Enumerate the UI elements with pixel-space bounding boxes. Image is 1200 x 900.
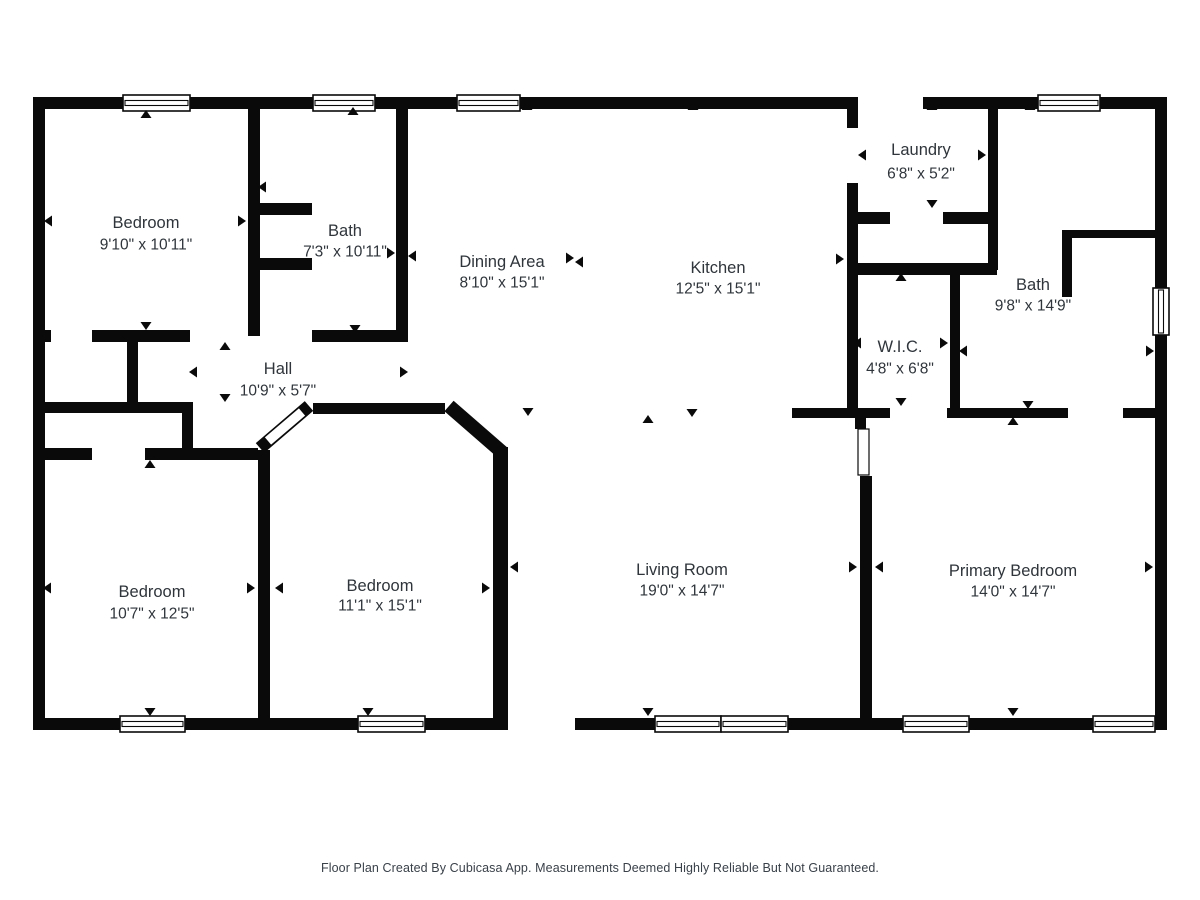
room-dimensions-laundry: 6'8" x 5'2" [887, 166, 955, 183]
room-dimensions-bedroom-bottom-middle: 11'1" x 15'1" [338, 598, 422, 615]
wall [858, 212, 890, 224]
room-dimensions-wic: 4'8" x 6'8" [866, 361, 934, 378]
window-pane [1040, 101, 1098, 106]
room-label-kitchen: Kitchen [690, 259, 745, 277]
dimension-arrow [1146, 346, 1154, 357]
window-pane [459, 101, 518, 106]
dimension-arrow [940, 338, 948, 349]
dimension-arrow [363, 708, 374, 716]
wall [33, 448, 92, 460]
door-opening [268, 412, 302, 441]
door-opening [858, 429, 869, 475]
wall [1062, 230, 1072, 297]
dimension-arrow [247, 583, 255, 594]
dimension-arrow [220, 394, 231, 402]
wall [950, 275, 960, 408]
footer-disclaimer: Floor Plan Created By Cubicasa App. Meas… [0, 861, 1200, 875]
window-pane [657, 722, 719, 727]
dimension-arrow [959, 346, 967, 357]
room-label-dining-area: Dining Area [459, 253, 545, 271]
wall [145, 448, 258, 460]
wall [847, 97, 858, 128]
wall [248, 109, 260, 336]
wall [396, 109, 408, 342]
dimension-arrow [1023, 401, 1034, 409]
dimension-arrow [189, 367, 197, 378]
room-label-hall: Hall [264, 360, 292, 378]
window-pane [122, 722, 183, 727]
dimension-arrow [238, 216, 246, 227]
room-dimensions-living-room: 19'0" x 14'7" [639, 583, 724, 600]
wall [858, 263, 997, 275]
dimension-arrow [482, 583, 490, 594]
wall [45, 330, 51, 342]
wall [257, 203, 312, 215]
room-label-bedroom-bottom-middle: Bedroom [347, 577, 414, 595]
window-pane [315, 101, 373, 106]
wall [127, 342, 138, 404]
dimension-arrow [836, 254, 844, 265]
dimension-arrow [400, 367, 408, 378]
dimension-arrow [44, 216, 52, 227]
dimension-arrow [858, 150, 866, 161]
dimension-arrow [643, 415, 654, 423]
wall [92, 330, 190, 342]
dimension-arrow [896, 398, 907, 406]
wall [1155, 97, 1167, 730]
wall [313, 403, 445, 414]
wall [792, 408, 890, 418]
dimension-arrow [145, 708, 156, 716]
wall [258, 450, 270, 730]
window-pane [723, 722, 786, 727]
room-dimensions-bath-top-right: 9'8" x 14'9" [995, 298, 1071, 315]
room-dimensions-kitchen: 12'5" x 15'1" [675, 281, 760, 298]
floor-plan: Bedroom9'10" x 10'11"Bath7'3" x 10'11"Di… [0, 0, 1200, 900]
window-pane [905, 722, 967, 727]
wall [860, 476, 872, 730]
wall [988, 109, 998, 270]
room-dimensions-bath-top-left: 7'3" x 10'11" [303, 244, 387, 261]
room-dimensions-bedroom-top-left: 9'10" x 10'11" [100, 237, 192, 254]
wall [943, 212, 988, 224]
wall [33, 97, 45, 730]
dimension-arrow [566, 253, 574, 264]
wall [855, 418, 866, 429]
dimension-arrow [643, 708, 654, 716]
dimension-arrow [849, 562, 857, 573]
room-label-bath-top-right: Bath [1016, 276, 1050, 294]
dimension-arrow [575, 257, 583, 268]
dimension-arrow [687, 409, 698, 417]
dimension-arrow [141, 322, 152, 330]
room-label-bedroom-bottom-left: Bedroom [119, 583, 186, 601]
room-dimensions-hall: 10'9" x 5'7" [240, 383, 316, 400]
wall [847, 183, 858, 418]
dimension-arrow [927, 200, 938, 208]
wall-diagonal [449, 406, 503, 453]
wall [1123, 408, 1155, 418]
dimension-arrow [1008, 417, 1019, 425]
room-label-wic: W.I.C. [878, 338, 923, 356]
wall [312, 330, 408, 342]
room-label-living-room: Living Room [636, 561, 728, 579]
room-label-laundry: Laundry [891, 141, 951, 159]
wall [40, 402, 182, 413]
dimension-arrow [1008, 708, 1019, 716]
window-pane [125, 101, 188, 106]
window-pane [1095, 722, 1153, 727]
dimension-arrow [1145, 562, 1153, 573]
dimension-arrow [875, 562, 883, 573]
window-pane [1159, 290, 1164, 333]
window-pane [360, 722, 423, 727]
room-dimensions-dining-area: 8'10" x 15'1" [459, 275, 544, 292]
room-label-bath-top-left: Bath [328, 222, 362, 240]
wall [33, 718, 508, 730]
dimension-arrow [978, 150, 986, 161]
dimension-arrow [523, 408, 534, 416]
dimension-arrow [408, 251, 416, 262]
room-dimensions-bedroom-bottom-left: 10'7" x 12'5" [109, 606, 194, 623]
dimension-arrow [275, 583, 283, 594]
dimension-arrow [220, 342, 231, 350]
dimension-arrow [145, 460, 156, 468]
dimension-arrow [387, 248, 395, 259]
room-label-primary-bedroom: Primary Bedroom [949, 562, 1077, 580]
room-label-bedroom-top-left: Bedroom [113, 214, 180, 232]
room-dimensions-primary-bedroom: 14'0" x 14'7" [970, 584, 1055, 601]
dimension-arrow [510, 562, 518, 573]
floor-plan-page: Bedroom9'10" x 10'11"Bath7'3" x 10'11"Di… [0, 0, 1200, 900]
wall [493, 447, 508, 730]
wall [1072, 230, 1155, 238]
wall [947, 408, 1068, 418]
wall [182, 402, 193, 453]
